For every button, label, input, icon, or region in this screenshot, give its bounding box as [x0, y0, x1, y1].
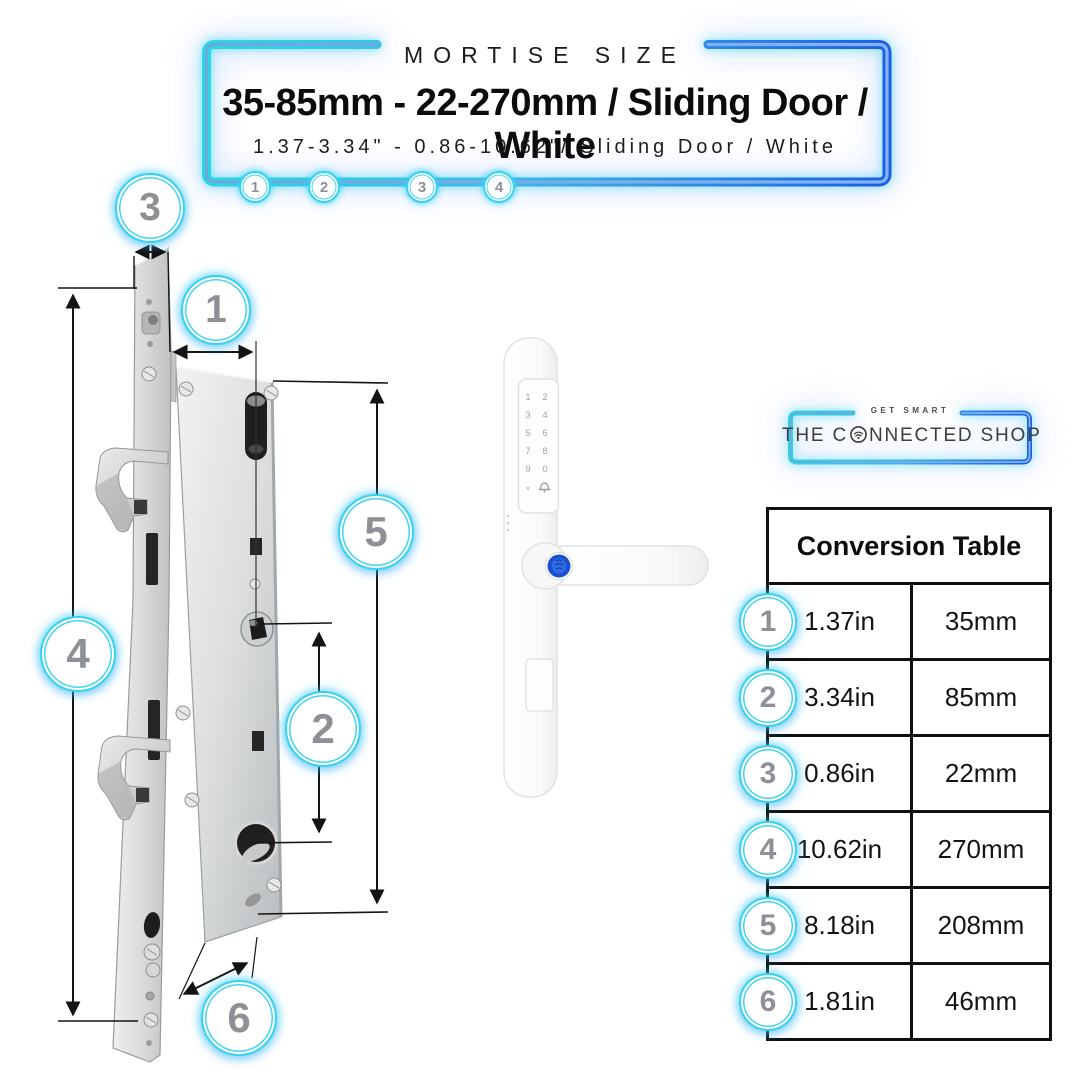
eyebrow-label: MORTISE SIZE	[200, 42, 890, 69]
conversion-table: Conversion Table 1.37in 35mm 3.34in 85mm…	[766, 507, 1052, 1041]
logo-brand-suffix: NNECTED SHOP	[869, 425, 1042, 446]
callout-badge-4: 4	[40, 616, 116, 692]
table-row-badge-3: 3	[739, 745, 797, 803]
callout-badge-2: 2	[285, 691, 361, 767]
header-step-badge-2: 2	[308, 171, 340, 203]
table-row-badge-5: 5	[739, 897, 797, 955]
table-row: 1.37in 35mm	[769, 585, 1049, 661]
callout-badge-1: 1	[181, 275, 251, 345]
infographic-canvas: 1 2 3 4 5 6 7 8 9 0 *	[0, 0, 1080, 1080]
table-row: 0.86in 22mm	[769, 737, 1049, 813]
page-subtitle: 1.37-3.34" - 0.86-10.62"/ Sliding Door /…	[180, 136, 910, 159]
table-row: 10.62in 270mm	[769, 813, 1049, 889]
table-row: 8.18in 208mm	[769, 889, 1049, 965]
header-step-badge-3: 3	[406, 171, 438, 203]
table-row-badge-4: 4	[739, 821, 797, 879]
table-row: 3.34in 85mm	[769, 661, 1049, 737]
callout-badge-5: 5	[338, 494, 414, 570]
logo-tagline: GET SMART	[790, 406, 1030, 415]
table-row-badge-6: 6	[739, 973, 797, 1031]
logo-brand-prefix: THE C	[782, 425, 848, 446]
mm-cell: 208mm	[913, 889, 1049, 962]
mm-cell: 85mm	[913, 661, 1049, 734]
wifi-o-icon	[849, 425, 868, 450]
conversion-table-title: Conversion Table	[769, 510, 1049, 585]
logo-brand: THE CNNECTED SHOP	[782, 425, 1038, 450]
callout-badge-3: 3	[115, 173, 185, 243]
table-row: 1.81in 46mm	[769, 965, 1049, 1038]
table-row-badge-2: 2	[739, 669, 797, 727]
mm-cell: 22mm	[913, 737, 1049, 810]
mm-cell: 270mm	[913, 813, 1049, 886]
callout-badge-6: 6	[201, 980, 277, 1056]
header-step-badge-4: 4	[483, 171, 515, 203]
table-row-badge-1: 1	[739, 593, 797, 651]
mm-cell: 46mm	[913, 965, 1049, 1038]
mm-cell: 35mm	[913, 585, 1049, 658]
header-step-badge-1: 1	[239, 171, 271, 203]
